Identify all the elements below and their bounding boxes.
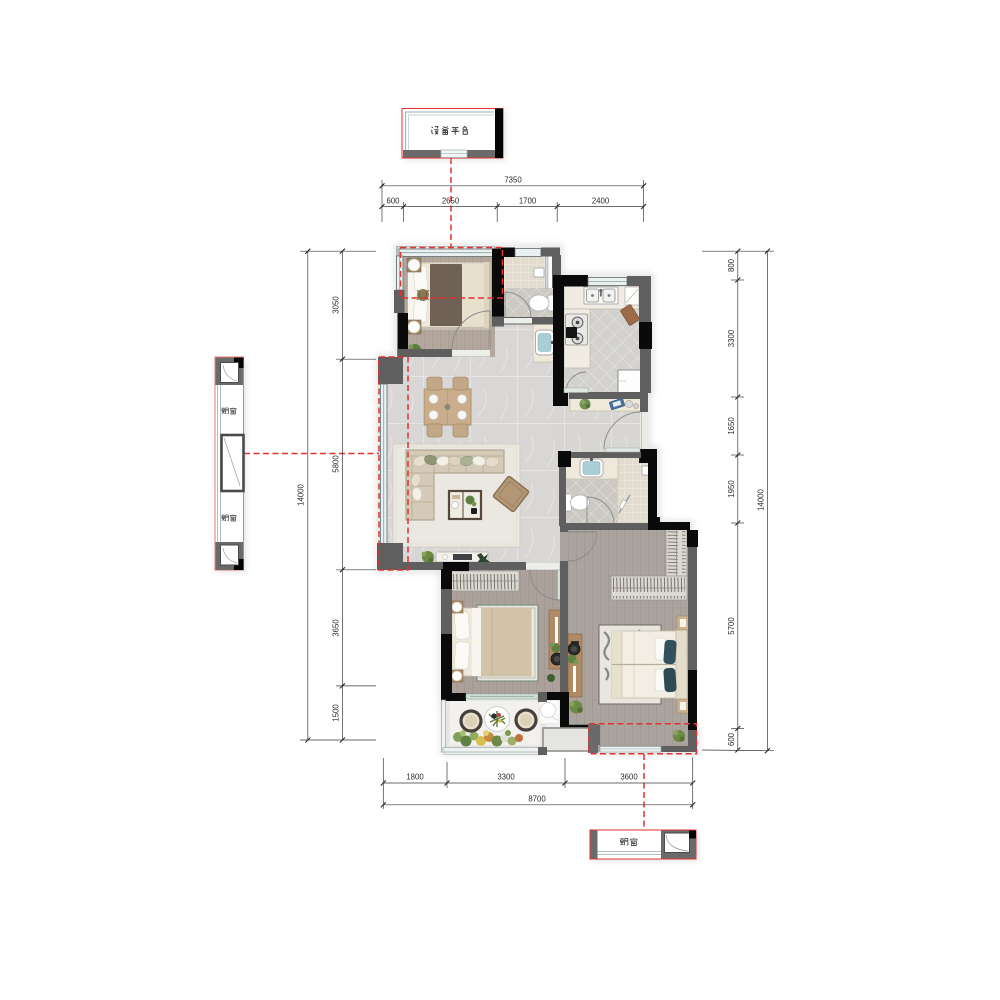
svg-text:3650: 3650 (332, 619, 341, 637)
svg-text:800: 800 (727, 258, 736, 272)
svg-text:8700: 8700 (528, 795, 546, 804)
svg-text:3600: 3600 (620, 773, 638, 782)
svg-text:600: 600 (386, 197, 400, 206)
svg-text:1700: 1700 (519, 197, 537, 206)
svg-text:7350: 7350 (504, 176, 522, 185)
svg-text:2650: 2650 (442, 197, 460, 206)
svg-text:600: 600 (727, 732, 736, 746)
svg-text:2400: 2400 (592, 197, 610, 206)
svg-text:1950: 1950 (727, 480, 736, 498)
svg-text:3300: 3300 (727, 329, 736, 347)
svg-text:3050: 3050 (332, 296, 341, 314)
svg-text:1500: 1500 (332, 704, 341, 722)
svg-text:14000: 14000 (756, 488, 765, 510)
svg-text:1800: 1800 (406, 773, 424, 782)
svg-text:5700: 5700 (727, 617, 736, 635)
svg-text:14000: 14000 (297, 483, 306, 505)
svg-text:1650: 1650 (727, 417, 736, 435)
svg-text:3300: 3300 (497, 773, 515, 782)
svg-text:5800: 5800 (332, 455, 341, 473)
